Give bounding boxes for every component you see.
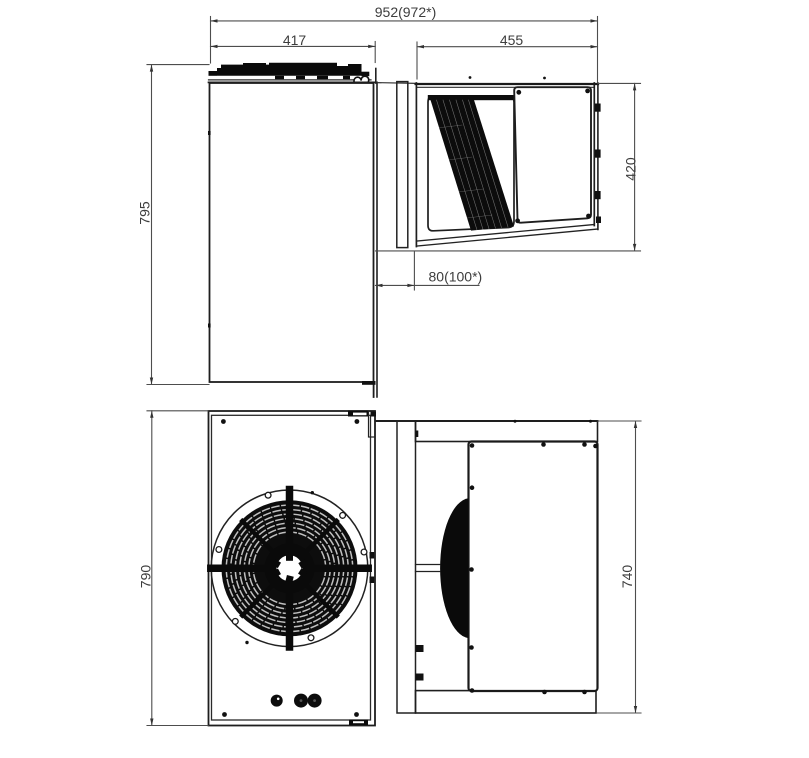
svg-text:417: 417 [283, 32, 307, 48]
svg-text:790: 790 [138, 565, 154, 589]
svg-text:740: 740 [619, 565, 635, 589]
svg-text:455: 455 [500, 32, 524, 48]
svg-text:952(972*): 952(972*) [375, 4, 437, 20]
svg-text:80(100*): 80(100*) [429, 269, 483, 285]
svg-text:420: 420 [623, 157, 639, 181]
svg-text:795: 795 [137, 201, 153, 225]
